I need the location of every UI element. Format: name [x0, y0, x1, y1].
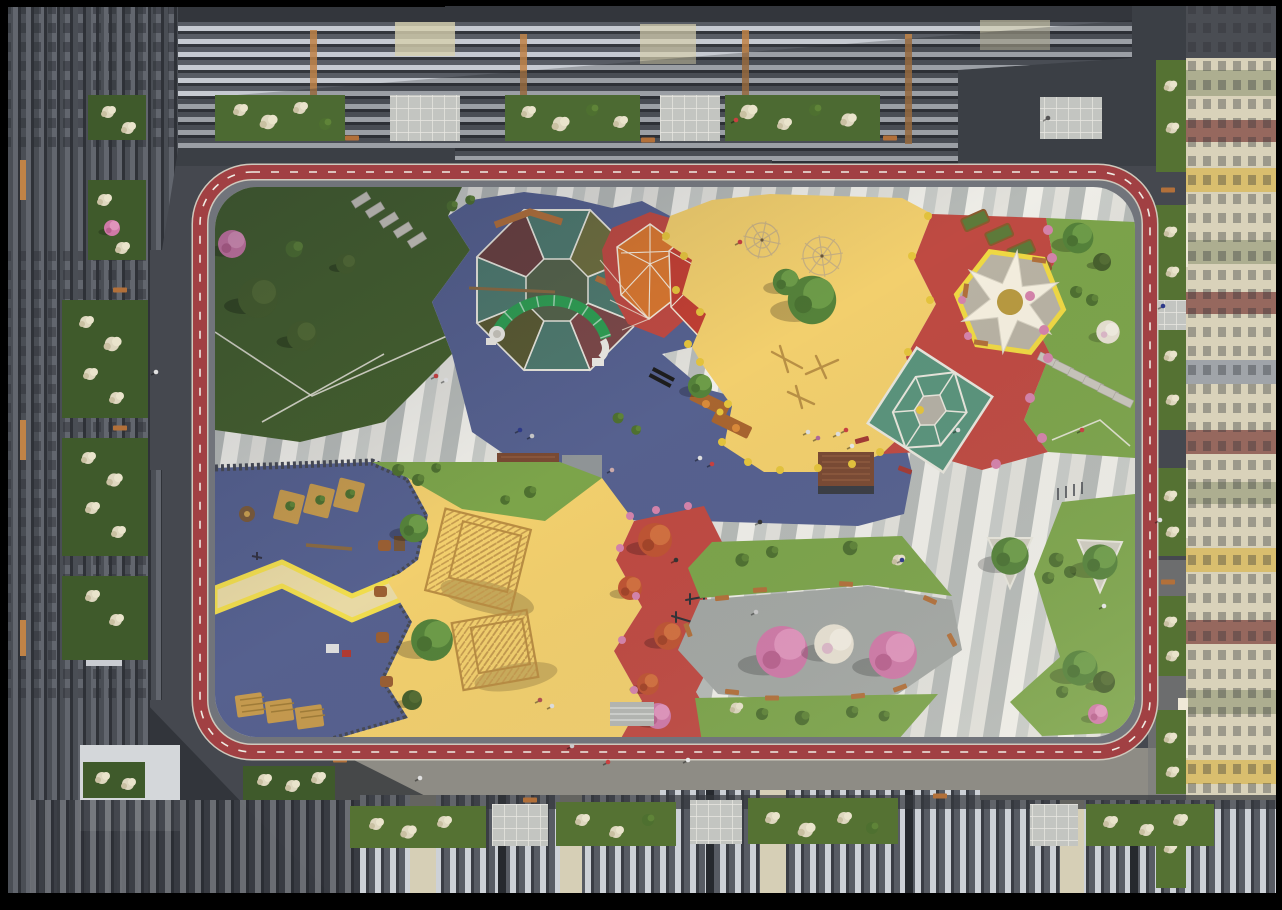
courtyard-aerial-render [0, 0, 1282, 910]
building-band-east [1178, 6, 1276, 894]
facade-accent [20, 160, 26, 200]
frame-left [0, 0, 8, 910]
frame-right [1276, 0, 1282, 910]
facade-accent [20, 420, 26, 460]
street-bench [641, 138, 655, 143]
street-bench [113, 426, 127, 431]
street-bench [345, 136, 359, 141]
courtyard-interior [208, 187, 1135, 742]
frame-top [0, 0, 445, 7]
street-bench [1161, 580, 1175, 585]
street-bench [933, 794, 947, 799]
street-bench [1161, 188, 1175, 193]
facade-accent [20, 620, 26, 656]
frame-bottom [0, 893, 1282, 910]
street-bench [113, 288, 127, 293]
street-bench [883, 136, 897, 141]
facade-cream-panel [395, 22, 455, 56]
lighting-overlay [215, 187, 1135, 737]
scene-canvas [0, 0, 1282, 910]
street-bench [523, 798, 537, 803]
